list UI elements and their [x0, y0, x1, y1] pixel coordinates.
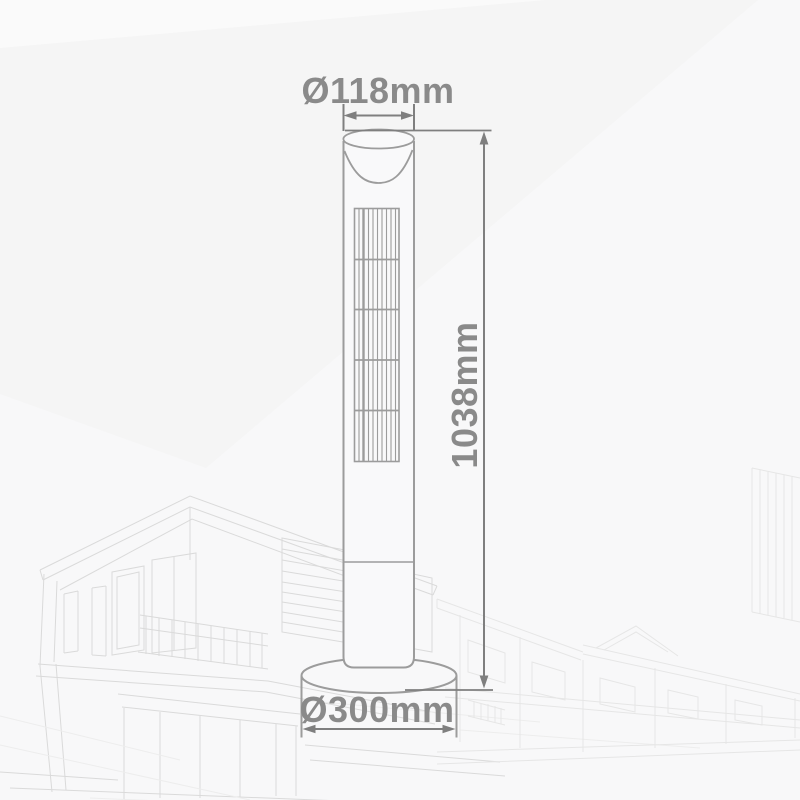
product-dimension-diagram: Ø118mm 1038mm Ø300mm: [0, 0, 800, 800]
top-diameter-label: Ø118mm: [301, 70, 454, 111]
fan-top-rim: [343, 130, 414, 149]
height-label: 1038mm: [444, 321, 485, 468]
base-diameter-label: Ø300mm: [299, 689, 454, 730]
house-left-sketch: [0, 496, 505, 800]
house-row-right-sketch: [437, 468, 800, 764]
arrow-down-icon: [480, 676, 489, 689]
